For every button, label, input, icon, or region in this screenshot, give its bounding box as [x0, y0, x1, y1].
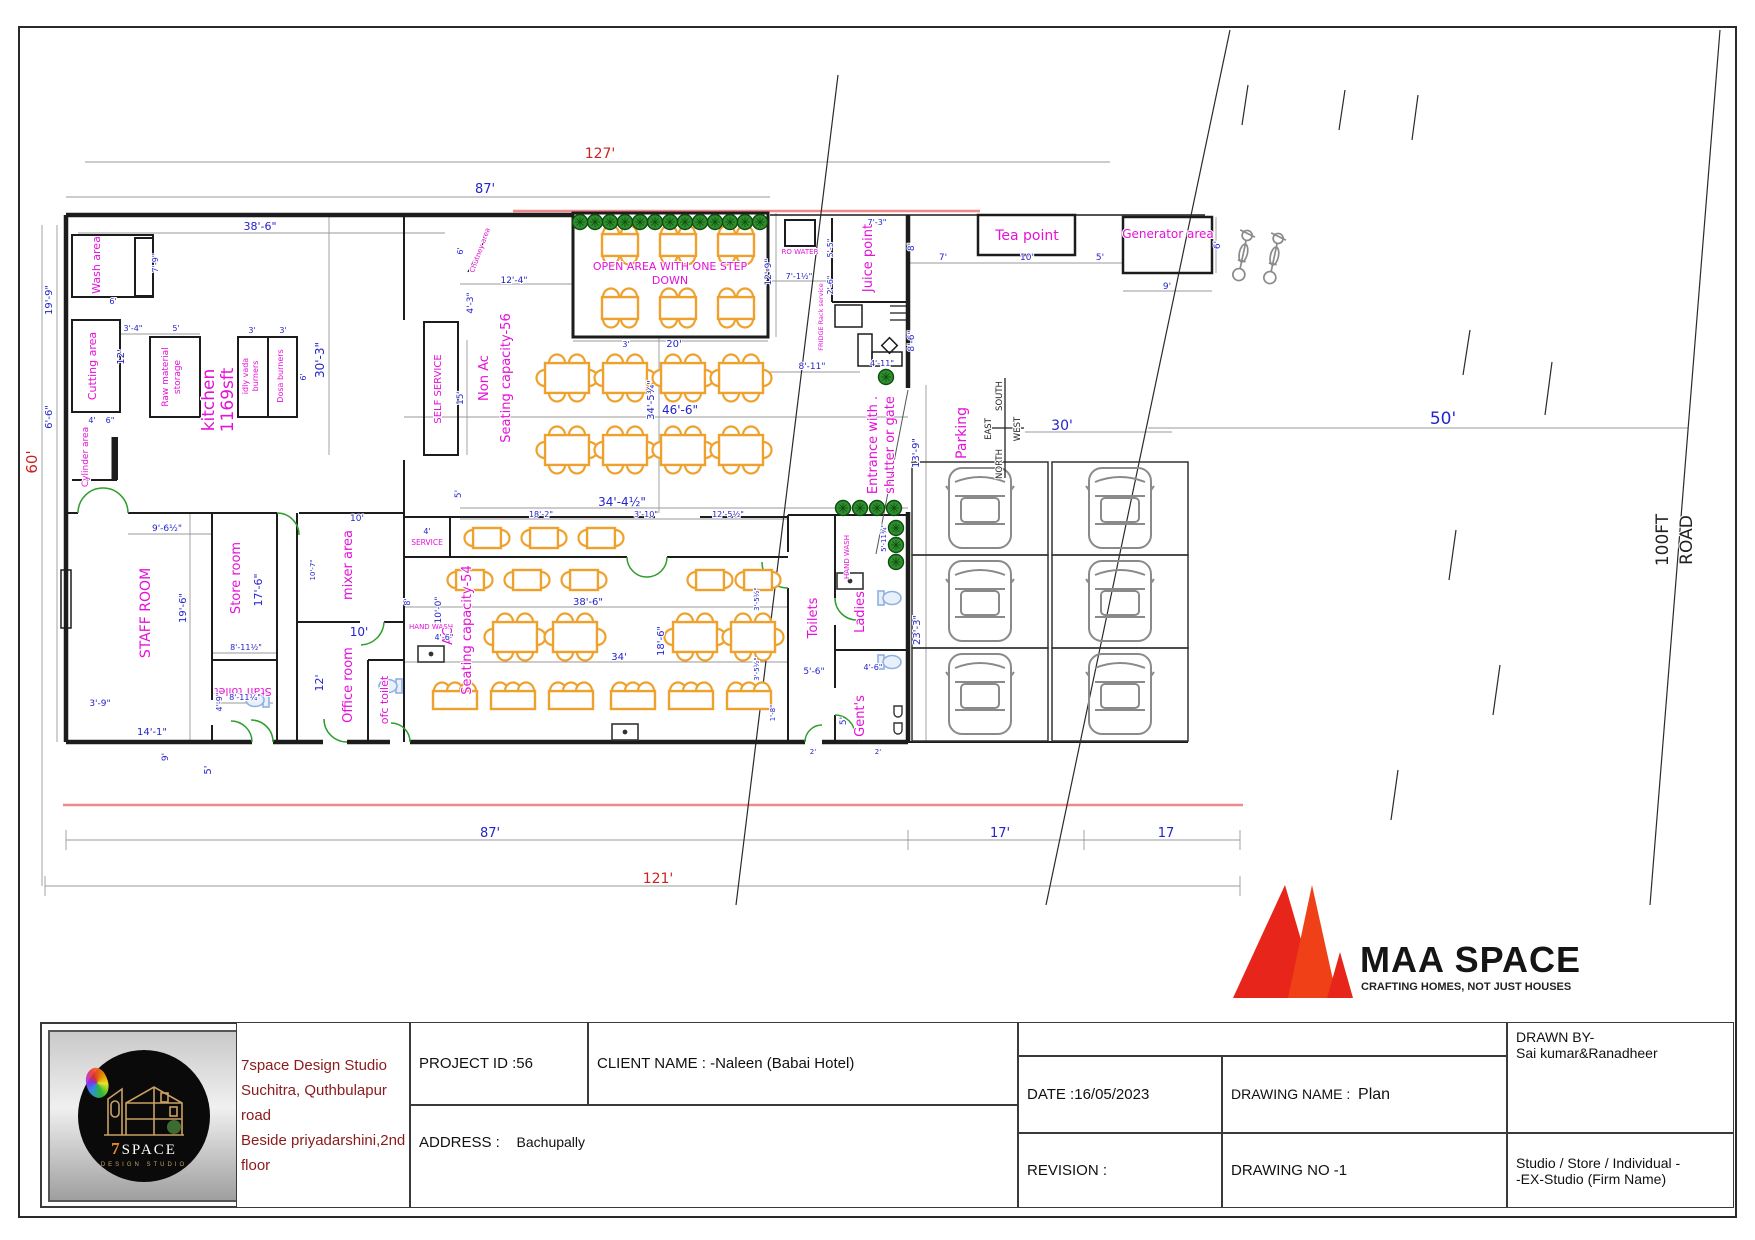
label-staff-room: STAFF ROOM [138, 568, 154, 658]
dim: 5' [203, 765, 214, 774]
dim: 3'-10" [634, 510, 658, 519]
label-hand-wash: HAND WASH [843, 535, 851, 579]
dim: 30'-3" [313, 342, 327, 378]
dim: 12'-9" [764, 258, 774, 285]
label-wash-area: Wash area [90, 236, 103, 294]
label-gents: Gent's [853, 695, 868, 737]
dim: 10' [1020, 253, 1034, 263]
sink-icon [418, 646, 444, 662]
dim: 10'-7" [309, 559, 317, 580]
dining-table [653, 355, 714, 402]
dining-table [665, 614, 726, 661]
dim: 20' [666, 339, 681, 350]
dining-table [711, 355, 772, 402]
studio-address-line: Suchitra, Quthbulapur road [241, 1078, 409, 1128]
dim: 3'-4" [124, 324, 143, 333]
dim: 4'-6" [864, 663, 883, 672]
dim: 8'-11" [798, 362, 825, 372]
dim: 6' [1213, 241, 1223, 249]
house-icon [98, 1081, 190, 1139]
dining-table [653, 427, 714, 474]
dim: 5' [454, 490, 464, 498]
address-label: ADDRESS : [419, 1134, 500, 1151]
label-service: SERVICE [411, 538, 443, 547]
dim: 18'-2" [529, 510, 553, 519]
drawing-no-cell: DRAWING NO -1 [1222, 1133, 1507, 1208]
dim: 6" [106, 416, 115, 425]
dim: 30' [1051, 418, 1073, 434]
dim: 87' [480, 826, 500, 841]
dim: 12' [116, 349, 127, 364]
bench-seat [669, 683, 713, 710]
parking-stalls [912, 462, 1188, 741]
maa-space-logo: MAA SPACE CRAFTING HOMES, NOT JUST HOUSE… [1233, 885, 1581, 998]
dim: 4' [423, 527, 430, 536]
label-juice-point: Juice point [861, 224, 876, 293]
dining-table [688, 570, 733, 590]
drawn-by-label: DRAWN BY- [1516, 1029, 1725, 1045]
compass-east: EAST [984, 417, 994, 440]
urinal-icon [894, 706, 902, 717]
dim: 17' [990, 826, 1010, 841]
dining-table [505, 570, 550, 590]
label-self-service: SELF SERVICE [433, 354, 444, 423]
label-parking: Parking [954, 407, 970, 459]
dim: 3' [279, 326, 286, 335]
label-office-room: Office room [341, 647, 356, 723]
label-road: ROAD [1677, 515, 1697, 565]
dim: 12'-4" [500, 276, 527, 286]
dim: 9'-6½" [152, 524, 182, 534]
label-raw-material: storage [173, 359, 183, 394]
dining-table [485, 614, 546, 661]
firm-line: -EX-Studio (Firm Name) [1516, 1171, 1680, 1187]
7space-logo-circle: 7SPACE DESIGN STUDIO [78, 1050, 210, 1182]
label-raw-material: Raw material [161, 347, 171, 406]
dining-table [723, 614, 784, 661]
dim: 15' [456, 391, 466, 405]
dim: 19'-6" [178, 593, 189, 623]
revision-cell: REVISION : [1018, 1133, 1222, 1208]
label-ac-capacity: Seating capacity-54 [460, 565, 475, 694]
label-cylinder-area: Cylinder area [81, 427, 91, 487]
drawing-sheet: SOUTH NORTH EAST WEST Wash area Cutting … [0, 0, 1755, 1240]
label-fridge-rack: FRIDGE Rack service [817, 283, 825, 350]
dim: 4' [88, 416, 95, 425]
label-open-area: OPEN AREA WITH ONE STEP [593, 260, 748, 273]
floor-plan: SOUTH NORTH EAST WEST Wash area Cutting … [0, 0, 1755, 1018]
dim: 10' [350, 514, 364, 524]
parked-cars [946, 229, 1287, 734]
dining-table [595, 427, 656, 474]
compass-north: NORTH [995, 449, 1005, 479]
dining-table [660, 226, 696, 265]
motorcycle-icon [1230, 229, 1256, 282]
label-ladies: Ladies [853, 591, 868, 633]
dim: 3' [248, 326, 255, 335]
dim: 2' [810, 748, 816, 756]
bench-seat [491, 683, 535, 710]
date-value: DATE :16/05/2023 [1019, 1080, 1157, 1109]
toilet-icon [878, 591, 901, 605]
dining-table [522, 528, 567, 548]
car-icon [946, 654, 1014, 734]
bench-seat [611, 683, 655, 710]
dim: 7'-9" [151, 254, 160, 273]
address-cell: ADDRESS : Bachupally [410, 1105, 1018, 1208]
dim: 3'-9" [89, 699, 110, 709]
label-kitchen-area: 1169sft [218, 367, 238, 432]
dim: 2' [875, 748, 881, 756]
dim: 17 [1158, 826, 1175, 841]
dim: 10'-0" [434, 596, 444, 623]
dim: 7' [939, 253, 947, 263]
dim: 5' [172, 324, 179, 333]
studio-address-cell: 7space Design Studio Suchitra, Quthbulap… [236, 1022, 410, 1208]
dining-table [602, 289, 638, 328]
firm-cell: Studio / Store / Individual - -EX-Studio… [1507, 1133, 1734, 1208]
outer-walls [66, 215, 908, 742]
label-toilets: Toilets [806, 597, 821, 639]
dim: 2'-6" [826, 276, 835, 295]
dim: 10' [350, 625, 369, 639]
dining-table [562, 570, 607, 590]
label-dosa-burners: Dosa burners [276, 349, 285, 402]
project-id-cell: PROJECT ID :56 [410, 1022, 588, 1105]
dim: 3'-5½" [753, 587, 761, 610]
dim: 34'-5¾" [646, 380, 657, 420]
label-cutting-area: Cutting area [86, 332, 99, 400]
dim: 87' [475, 182, 495, 197]
label-road: 100FT [1653, 513, 1673, 566]
address-value: Bachupally [517, 1134, 586, 1150]
revision-label: REVISION : [1019, 1156, 1115, 1185]
dining-table [660, 289, 696, 328]
label-mixer-area: mixer area [341, 530, 356, 600]
dim: 46'-6" [662, 403, 698, 417]
dim: 5'-11¾" [880, 524, 888, 552]
dim: 5' [839, 717, 849, 725]
dim: 3'-5½" [753, 657, 761, 680]
label-open-area: DOWN [652, 274, 688, 287]
dim: 34'-4½" [598, 495, 646, 509]
dim: 18'-6" [656, 626, 667, 656]
dim: 127' [585, 146, 616, 162]
dining-table [545, 614, 606, 661]
dim: 4'-11" [870, 359, 894, 368]
studio-name: 7space Design Studio [241, 1053, 409, 1078]
dim: 4'-9" [215, 693, 224, 712]
dim: 1'-8" [769, 705, 777, 722]
dining-table [711, 427, 772, 474]
dim: 8'-6" [907, 330, 917, 351]
dim: 17'-6" [252, 573, 265, 606]
dim: 7'-1½" [786, 272, 813, 281]
label-store-room: Store room [229, 542, 244, 614]
project-id: PROJECT ID :56 [411, 1049, 541, 1078]
dim: 8' [907, 243, 917, 251]
dim: 8'-11½" [230, 643, 262, 652]
motorcycle-icon [1261, 232, 1287, 285]
car-icon [1086, 468, 1154, 548]
label-tea-point: Tea point [994, 228, 1059, 244]
drawing-no: DRAWING NO -1 [1223, 1156, 1355, 1185]
sink-icon [612, 724, 638, 740]
dining-table [537, 355, 598, 402]
top-strip-cell [1018, 1022, 1507, 1056]
car-icon [946, 468, 1014, 548]
logo-space: SPACE [122, 1142, 177, 1158]
dining-table [465, 528, 510, 548]
dim: 38'-6" [573, 597, 603, 608]
dim: 7'-3" [868, 218, 887, 227]
dim: 8'-11¼" [229, 693, 261, 702]
compass-west: WEST [1013, 416, 1023, 441]
label-entrance: shutter or gate [883, 396, 898, 494]
label-ro-water: RO WATER [782, 248, 819, 256]
dim: 34' [611, 652, 626, 663]
dim: 60' [23, 450, 41, 473]
label-chutney-area: Chutney area [468, 227, 492, 274]
dim: 14'-1" [137, 727, 167, 738]
label-idly-burners: idly vada [241, 358, 250, 395]
dim: 4'-6" [435, 633, 454, 642]
dim: 121' [643, 871, 674, 887]
car-icon [1086, 561, 1154, 641]
dim: 6'-6" [44, 405, 55, 429]
logo-7: 7 [111, 1139, 122, 1158]
dim: 38'-6" [243, 220, 276, 233]
dim: 13'-9" [911, 438, 922, 468]
label-non-ac-capacity: Seating capacity-56 [499, 313, 514, 442]
dim: 6' [456, 247, 465, 254]
dining-table [718, 226, 754, 265]
drawing-name-label: DRAWING NAME : [1231, 1086, 1350, 1102]
dining-table [736, 570, 781, 590]
bench-seat [549, 683, 593, 710]
7space-logo-text: 7SPACE [111, 1139, 177, 1159]
label-entrance: Entrance with . [866, 396, 881, 494]
drawn-by-cell: DRAWN BY- Sai kumar&Ranadheer [1507, 1022, 1734, 1133]
label-idly-burners: burners [251, 361, 260, 392]
date-cell: DATE :16/05/2023 [1018, 1056, 1222, 1133]
dim: 6' [299, 373, 308, 380]
dining-table [537, 427, 598, 474]
bench-seat [727, 683, 771, 710]
dining-furniture [433, 226, 784, 710]
drawing-name-value: Plan [1358, 1086, 1390, 1103]
dim: 50' [1430, 409, 1456, 429]
dim: 3' [622, 340, 629, 349]
7space-logo: 7SPACE DESIGN STUDIO [48, 1030, 240, 1202]
dim: 9' [161, 753, 171, 761]
7space-logo-subtext: DESIGN STUDIO [101, 1162, 187, 1168]
dim: 12'-5½" [712, 510, 744, 519]
studio-address-line: Beside priyadarshini,2nd floor [241, 1128, 409, 1178]
maa-logo-tagline: CRAFTING HOMES, NOT JUST HOUSES [1361, 981, 1571, 993]
drawing-name-cell: DRAWING NAME : Plan [1222, 1056, 1507, 1133]
label-generator-area: Generator area [1122, 227, 1214, 241]
maa-logo-name: MAA SPACE [1360, 939, 1581, 980]
firm-line: Studio / Store / Individual - [1516, 1155, 1680, 1171]
dim: 12' [313, 674, 326, 691]
label-non-ac: Non Ac [477, 355, 492, 401]
dim: 5' [1096, 253, 1104, 263]
dining-table [718, 289, 754, 328]
dim: 5'-5" [826, 239, 835, 258]
client-name: CLIENT NAME : -Naleen (Babai Hotel) [589, 1049, 862, 1078]
dim: 23'-3" [912, 615, 923, 645]
client-name-cell: CLIENT NAME : -Naleen (Babai Hotel) [588, 1022, 1018, 1105]
drawn-by-value: Sai kumar&Ranadheer [1516, 1045, 1725, 1061]
dining-table [602, 226, 638, 265]
urinal-icon [894, 723, 902, 734]
label-ofc-toilet: ofc toilet [378, 675, 391, 724]
dim: 8' [403, 598, 412, 605]
dim: 19'-9" [44, 285, 55, 315]
compass-south: SOUTH [995, 381, 1005, 411]
dim: 6' [109, 297, 116, 306]
dim: 5'-6" [803, 667, 824, 677]
dim: 9' [1163, 282, 1171, 292]
dining-table [579, 528, 624, 548]
compass: SOUTH NORTH EAST WEST [984, 378, 1024, 479]
car-icon [946, 561, 1014, 641]
dim: 4'-3" [466, 292, 476, 313]
label-kitchen: kitchen [199, 369, 219, 432]
